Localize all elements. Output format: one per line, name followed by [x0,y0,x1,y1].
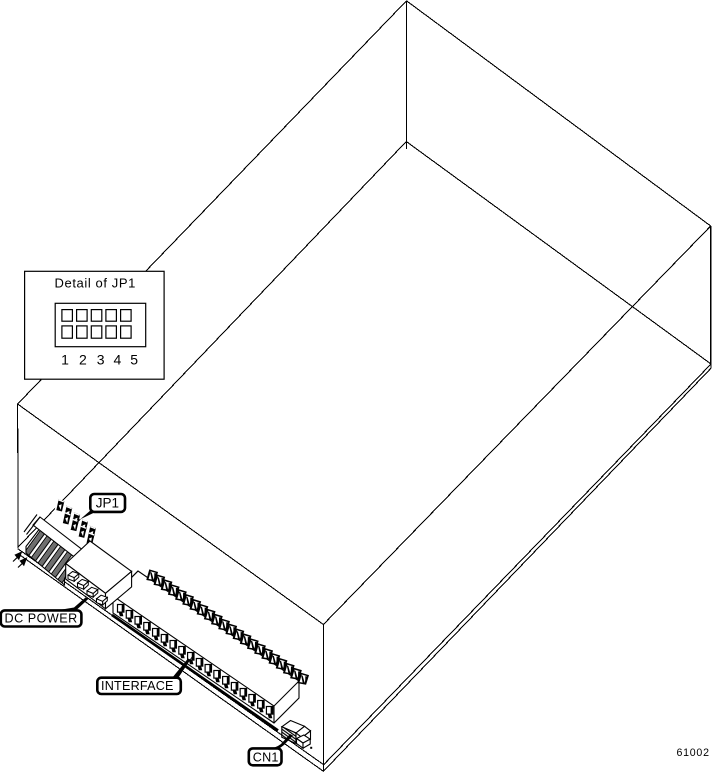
svg-text:INTERFACE: INTERFACE [101,679,174,693]
svg-text:61002: 61002 [677,747,710,759]
svg-text:JP1: JP1 [96,495,119,510]
svg-text:4: 4 [114,351,122,367]
svg-text:DC POWER: DC POWER [5,612,78,626]
svg-text:5: 5 [130,351,138,367]
svg-text:3: 3 [97,351,105,367]
svg-text:2: 2 [79,351,87,367]
svg-text:CN1: CN1 [253,751,279,765]
svg-text:1: 1 [61,351,69,367]
svg-text:Detail of JP1: Detail of JP1 [55,276,137,291]
